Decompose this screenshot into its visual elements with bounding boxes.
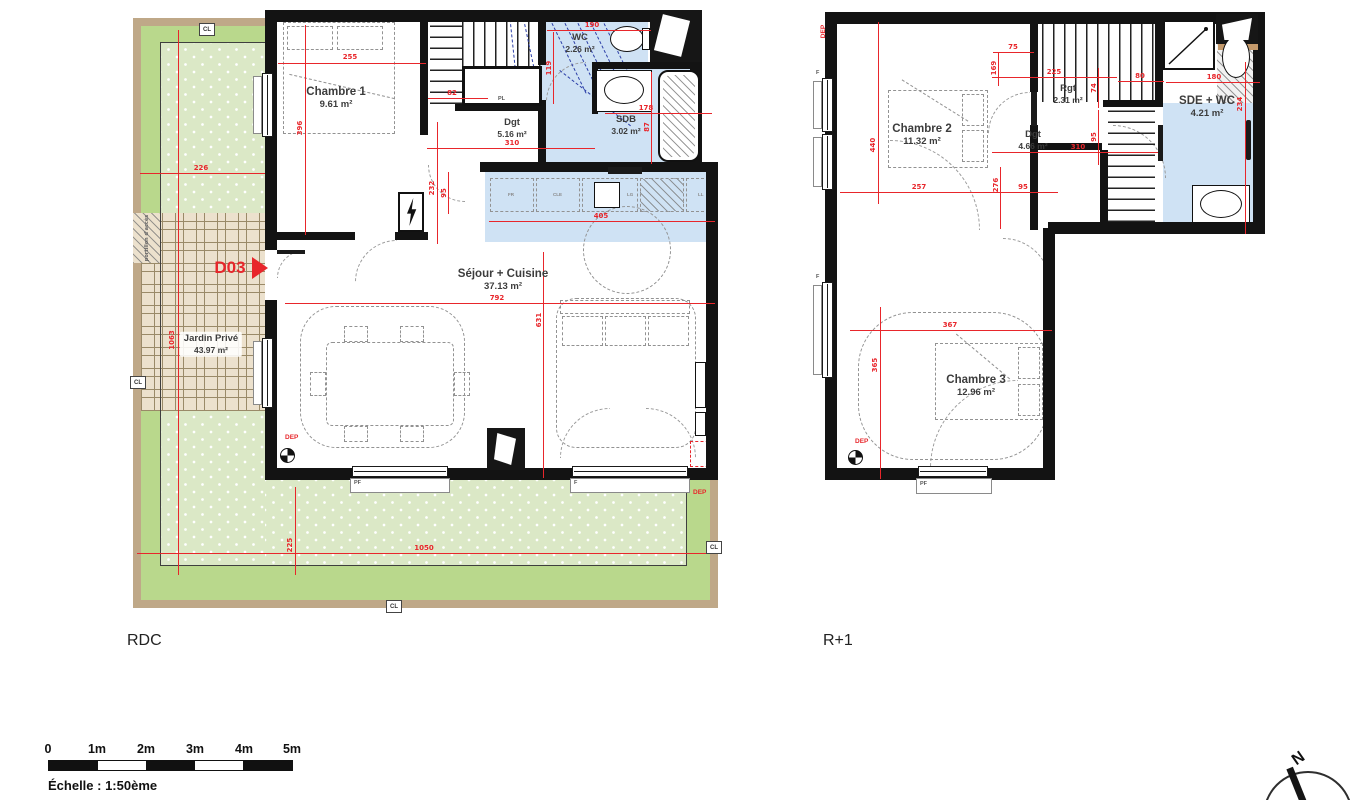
chair bbox=[400, 326, 424, 342]
dim-line bbox=[1118, 81, 1164, 82]
room-name: Jardin Privé bbox=[184, 333, 238, 345]
dim-line bbox=[437, 122, 438, 244]
room-name: Dgt bbox=[497, 117, 526, 129]
unit-tag: D03 bbox=[214, 258, 245, 278]
room-area: 3.02 m² bbox=[611, 126, 640, 137]
dim-label: 405 bbox=[594, 212, 609, 220]
kitchen-unit-label: CLE bbox=[553, 192, 562, 197]
pillow bbox=[287, 26, 333, 50]
floor-title-r1: R+1 bbox=[823, 632, 853, 650]
dim-line bbox=[651, 72, 652, 164]
window-sill bbox=[813, 81, 822, 129]
dim-label: 95 bbox=[440, 188, 448, 198]
dim-label: 95 bbox=[1090, 132, 1098, 142]
cl-marker: CL bbox=[199, 23, 215, 36]
room-name: SDE + WC bbox=[1179, 94, 1235, 108]
chair bbox=[454, 372, 470, 396]
sofa-seat bbox=[562, 316, 603, 346]
dim-line bbox=[448, 172, 449, 214]
hedge-strip bbox=[133, 18, 141, 608]
chair bbox=[344, 326, 368, 342]
chair bbox=[400, 426, 424, 442]
scale-tick: 0 bbox=[45, 742, 52, 756]
dim-label: 792 bbox=[490, 294, 505, 302]
room-area: 37.13 m² bbox=[458, 281, 548, 293]
sofa-seat bbox=[605, 316, 646, 346]
dim-label: 234 bbox=[1236, 97, 1244, 112]
chair bbox=[310, 372, 326, 396]
window-sill bbox=[253, 341, 262, 405]
room-area: 9.61 m² bbox=[306, 99, 365, 111]
wall bbox=[1048, 222, 1265, 234]
room-name: Rgt bbox=[1053, 83, 1082, 95]
window bbox=[822, 134, 833, 190]
pillow bbox=[962, 94, 984, 126]
dim-line bbox=[1000, 192, 1058, 193]
room-label-sdewc: SDE + WC 4.21 m² bbox=[1179, 94, 1235, 120]
floor-title-rdc: RDC bbox=[127, 632, 162, 650]
scale-caption: Échelle : 1:50ème bbox=[48, 778, 157, 793]
room-area: 43.97 m² bbox=[184, 345, 238, 356]
scale-tick: 1m bbox=[88, 742, 106, 756]
dim-label: 169 bbox=[990, 61, 998, 76]
room-area: 12.96 m² bbox=[946, 387, 1005, 399]
dim-label: 190 bbox=[585, 21, 600, 29]
bathtub-hatch bbox=[663, 75, 695, 157]
room-label-rgt: Rgt 2.31 m² bbox=[1053, 83, 1082, 106]
kitchen-unit-hatched bbox=[640, 178, 684, 212]
scale-tick: 4m bbox=[235, 742, 253, 756]
cl-marker: CL bbox=[706, 541, 722, 554]
dim-label: 310 bbox=[1071, 143, 1086, 151]
dim-label: 257 bbox=[912, 183, 927, 191]
dep-label: DEP bbox=[285, 434, 298, 441]
dim-label: 225 bbox=[286, 538, 294, 553]
room-area: 4.21 m² bbox=[1179, 108, 1235, 120]
room-name: Chambre 3 bbox=[946, 373, 1005, 387]
window bbox=[572, 466, 688, 477]
dim-line bbox=[489, 221, 715, 222]
dim-line bbox=[305, 25, 306, 235]
tv-unit bbox=[695, 412, 706, 436]
scale-segment bbox=[146, 761, 195, 770]
dim-line bbox=[1245, 62, 1246, 234]
sink-bowl-icon bbox=[604, 76, 644, 104]
lawn-outline bbox=[160, 42, 161, 565]
stairs bbox=[1108, 102, 1155, 222]
room-name: SDB bbox=[611, 114, 640, 126]
room-label-chambre2: Chambre 2 11.32 m² bbox=[892, 122, 951, 148]
window-tag: PF bbox=[354, 480, 361, 486]
hedge-strip bbox=[133, 600, 718, 608]
window bbox=[822, 78, 833, 132]
dim-line bbox=[998, 52, 999, 86]
dim-line bbox=[547, 30, 651, 31]
kitchen-unit-label: LL bbox=[698, 192, 704, 197]
dim-label: 276 bbox=[992, 178, 1000, 193]
wall bbox=[706, 162, 718, 480]
dim-line bbox=[840, 192, 1000, 193]
window-sill bbox=[253, 76, 262, 134]
room-label-chambre3: Chambre 3 12.96 m² bbox=[946, 373, 1005, 399]
pillow bbox=[1018, 347, 1040, 379]
dim-label: 631 bbox=[535, 313, 543, 328]
window bbox=[262, 73, 273, 137]
door-leaf bbox=[1158, 125, 1163, 161]
dim-label: 225 bbox=[1047, 68, 1062, 76]
window-sill bbox=[350, 478, 450, 493]
window bbox=[918, 466, 988, 477]
dim-label: 232 bbox=[428, 181, 436, 196]
dim-line bbox=[1000, 167, 1001, 229]
dim-line bbox=[1098, 110, 1099, 165]
stairs bbox=[430, 14, 462, 104]
dim-line bbox=[278, 63, 426, 64]
door-leaf bbox=[1031, 92, 1037, 126]
room-label-dgt-r1: Dgt 4.66 m² bbox=[1018, 129, 1047, 152]
dim-label: 87 bbox=[643, 122, 651, 132]
floorplan-canvas: portillon d'accès PL bbox=[0, 0, 1367, 800]
dim-label: 80 bbox=[1135, 72, 1145, 80]
kitchen-unit-label: FR bbox=[508, 192, 514, 197]
portillon-label: portillon d'accès bbox=[144, 215, 150, 262]
wall bbox=[538, 10, 546, 65]
room-name: Chambre 2 bbox=[892, 122, 951, 136]
compass-circle-icon bbox=[1263, 771, 1353, 800]
window-sill bbox=[813, 137, 822, 187]
wall bbox=[265, 232, 355, 240]
wall bbox=[1155, 12, 1163, 107]
lawn-outline bbox=[160, 565, 686, 566]
dim-label: 396 bbox=[296, 121, 304, 136]
dim-label: 255 bbox=[343, 53, 358, 61]
toilet-tank bbox=[642, 28, 650, 50]
window-tag: PF bbox=[920, 481, 927, 487]
room-name: Dgt bbox=[1018, 129, 1047, 141]
lawn-outline bbox=[160, 42, 265, 43]
wall bbox=[1043, 228, 1055, 480]
dim-label: 367 bbox=[943, 321, 958, 329]
wall bbox=[1103, 100, 1163, 107]
cl-marker: CL bbox=[386, 600, 402, 613]
dim-line bbox=[427, 148, 595, 149]
dim-line bbox=[137, 553, 711, 554]
sofa-seat bbox=[648, 316, 689, 346]
window-tag: F bbox=[816, 70, 819, 76]
dim-line bbox=[428, 98, 488, 99]
scale-tick: 3m bbox=[186, 742, 204, 756]
dim-line bbox=[178, 30, 179, 575]
room-area: 4.66 m² bbox=[1018, 141, 1047, 152]
unit-arrow-icon bbox=[252, 257, 268, 279]
room-label-jardin: Jardin Privé 43.97 m² bbox=[180, 332, 242, 357]
dim-label: 74 bbox=[1090, 83, 1098, 93]
survey-marker-icon bbox=[848, 450, 863, 465]
dim-line bbox=[878, 22, 879, 204]
sink-bowl-icon bbox=[1200, 190, 1242, 218]
window bbox=[822, 282, 833, 378]
scale-segment bbox=[49, 761, 98, 770]
dim-line bbox=[553, 32, 554, 104]
dep-label: DEP bbox=[820, 25, 827, 38]
dim-line bbox=[140, 173, 265, 174]
window bbox=[352, 466, 448, 477]
hob-icon bbox=[608, 167, 642, 174]
room-name: Chambre 1 bbox=[306, 85, 365, 99]
room-name: WC bbox=[565, 32, 594, 44]
scale-bar-segments bbox=[48, 760, 293, 771]
shower-drain-icon bbox=[1165, 22, 1213, 68]
dim-label: 1050 bbox=[414, 544, 433, 552]
scale-segment bbox=[98, 761, 147, 770]
wall bbox=[1100, 150, 1108, 230]
dim-label: 82 bbox=[447, 89, 457, 97]
dim-label: 365 bbox=[871, 358, 879, 373]
cl-marker: CL bbox=[130, 376, 146, 389]
chair bbox=[344, 426, 368, 442]
pillow bbox=[337, 26, 383, 50]
dim-line bbox=[880, 307, 881, 479]
room-area: 2.31 m² bbox=[1053, 95, 1082, 106]
window-tag: F bbox=[816, 274, 819, 280]
window bbox=[262, 338, 273, 408]
towel-rail-icon bbox=[1246, 120, 1251, 160]
room-label-wc: WC 2.26 m² bbox=[565, 32, 594, 55]
pillow bbox=[962, 130, 984, 162]
room-area: 2.26 m² bbox=[565, 44, 594, 55]
dim-label: 440 bbox=[869, 138, 877, 153]
scale-segment bbox=[243, 761, 292, 770]
dep-label: DEP bbox=[693, 489, 706, 496]
dim-label: 95 bbox=[1018, 183, 1028, 191]
dim-label: 310 bbox=[505, 139, 520, 147]
dim-label: 226 bbox=[194, 164, 209, 172]
dim-label: 178 bbox=[639, 104, 654, 112]
door-swing-arc bbox=[277, 250, 333, 306]
window-sill bbox=[813, 285, 822, 375]
room-label-dgt: Dgt 5.16 m² bbox=[497, 117, 526, 140]
window-sill bbox=[570, 478, 690, 493]
room-area: 11.32 m² bbox=[892, 136, 951, 148]
room-label-sdb: SDB 3.02 m² bbox=[611, 114, 640, 137]
dim-line bbox=[285, 303, 715, 304]
room-name: Séjour + Cuisine bbox=[458, 267, 548, 281]
dim-label: 119 bbox=[545, 61, 553, 76]
room-label-sejour: Séjour + Cuisine 37.13 m² bbox=[458, 267, 548, 293]
dim-label: 1063 bbox=[168, 330, 176, 349]
scale-segment bbox=[195, 761, 244, 770]
survey-marker-icon bbox=[280, 448, 295, 463]
pillow bbox=[1018, 384, 1040, 416]
dim-line bbox=[1098, 68, 1099, 108]
window-tag: F bbox=[574, 480, 577, 486]
placard-label: PL bbox=[498, 96, 505, 102]
wall bbox=[592, 62, 696, 69]
dim-label: 180 bbox=[1207, 73, 1222, 81]
wall bbox=[420, 10, 428, 135]
dep-label: DEP bbox=[855, 438, 868, 445]
scale-tick: 5m bbox=[283, 742, 301, 756]
kitchen-sink-icon bbox=[594, 182, 620, 208]
wall bbox=[480, 162, 718, 172]
dim-label: 75 bbox=[1008, 43, 1018, 51]
kitchen-unit-label: LG bbox=[627, 192, 633, 197]
dining-table bbox=[326, 342, 454, 426]
window-sill bbox=[916, 478, 992, 494]
door-leaf bbox=[277, 250, 305, 254]
tv-unit bbox=[695, 362, 706, 408]
dim-line bbox=[993, 52, 1034, 53]
scale-tick: 2m bbox=[137, 742, 155, 756]
room-label-chambre1: Chambre 1 9.61 m² bbox=[306, 85, 365, 111]
dim-line bbox=[992, 152, 1158, 153]
wall bbox=[395, 232, 428, 240]
dim-line bbox=[295, 487, 296, 575]
room-area: 5.16 m² bbox=[497, 129, 526, 140]
